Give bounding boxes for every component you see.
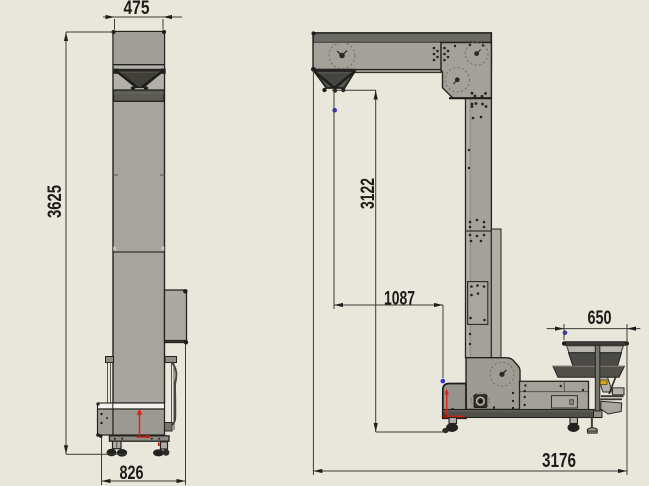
svg-text:475: 475 <box>124 0 150 19</box>
svg-text:3122: 3122 <box>358 178 379 209</box>
svg-text:1087: 1087 <box>384 289 415 310</box>
svg-text:3176: 3176 <box>542 449 576 472</box>
svg-text:3625: 3625 <box>45 185 66 218</box>
svg-text:650: 650 <box>588 308 612 329</box>
svg-text:826: 826 <box>120 463 144 484</box>
